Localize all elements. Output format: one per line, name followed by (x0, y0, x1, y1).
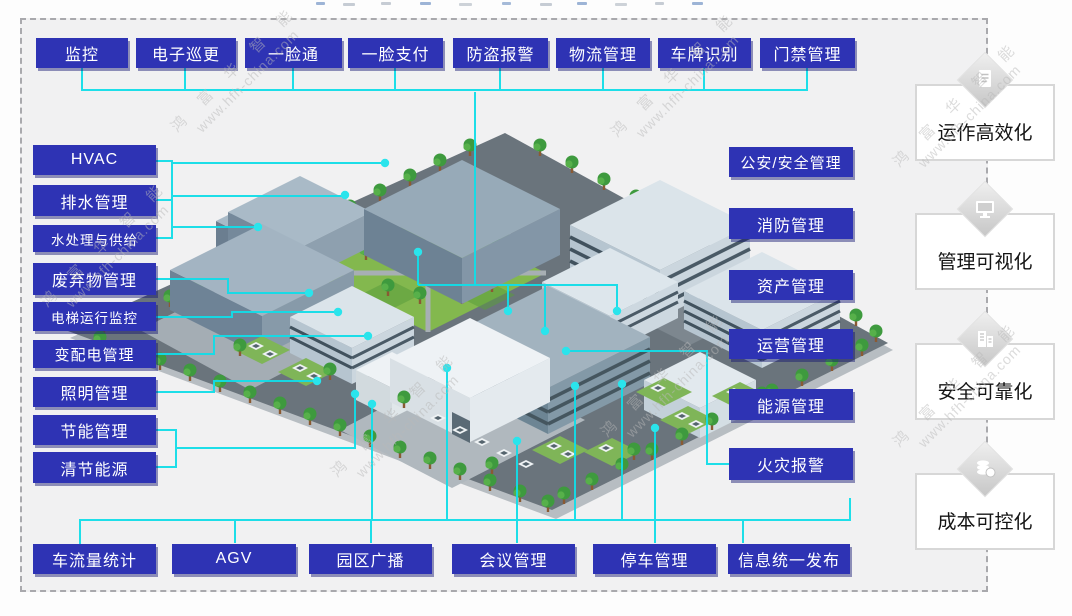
module-water-treatment[interactable]: 水处理与供给 (33, 225, 156, 252)
module-power-distribution[interactable]: 变配电管理 (33, 340, 156, 368)
module-clean-energy[interactable]: 清节能源 (33, 452, 156, 483)
campus-isometric-illustration (0, 0, 1072, 616)
benefit-card-cost-control: 成本可控化 (915, 473, 1055, 550)
coins-icon (970, 453, 1000, 483)
document-icon (970, 64, 1000, 94)
module-parking[interactable]: 停车管理 (593, 544, 716, 574)
module-drainage[interactable]: 排水管理 (33, 185, 156, 216)
module-elevator[interactable]: 电梯运行监控 (33, 302, 156, 331)
module-plate-recognition[interactable]: 车牌识别 (658, 38, 751, 68)
module-operations[interactable]: 运营管理 (729, 329, 853, 359)
benefit-card-efficient-operation: 运作高效化 (915, 84, 1055, 161)
smart-park-diagram: 监控 电子巡更 一脸通 一脸支付 防盗报警 物流管理 车牌识别 门禁管理 HVA… (0, 0, 1072, 616)
module-waste[interactable]: 废弃物管理 (33, 263, 156, 295)
module-traffic-stats[interactable]: 车流量统计 (33, 544, 156, 574)
benefit-label: 安全可靠化 (937, 377, 1032, 404)
benefit-card-visual-management: 管理可视化 (915, 213, 1055, 290)
benefit-label: 管理可视化 (937, 247, 1032, 274)
benefit-label: 成本可控化 (937, 507, 1032, 534)
benefit-label: 运作高效化 (937, 118, 1032, 145)
module-burglar-alarm[interactable]: 防盗报警 (453, 38, 548, 68)
module-park-broadcast[interactable]: 园区广播 (309, 544, 432, 574)
module-fire-management[interactable]: 消防管理 (729, 208, 853, 239)
module-energy-saving[interactable]: 节能管理 (33, 415, 156, 445)
module-fire-alarm[interactable]: 火灾报警 (729, 448, 853, 480)
module-public-security[interactable]: 公安/安全管理 (729, 147, 853, 177)
building-icon (970, 323, 1000, 353)
module-access-control[interactable]: 门禁管理 (760, 38, 855, 68)
module-meeting[interactable]: 会议管理 (452, 544, 575, 574)
benefit-card-safe-reliable: 安全可靠化 (915, 343, 1055, 420)
module-info-release[interactable]: 信息统一发布 (728, 544, 850, 574)
module-hvac[interactable]: HVAC (33, 145, 156, 175)
module-agv[interactable]: AGV (172, 544, 296, 574)
module-face-pass[interactable]: 一脸通 (245, 38, 342, 68)
module-face-payment[interactable]: 一脸支付 (348, 38, 443, 68)
module-monitoring[interactable]: 监控 (36, 38, 128, 68)
module-electronic-patrol[interactable]: 电子巡更 (136, 38, 236, 68)
monitor-icon (970, 193, 1000, 223)
module-energy-management[interactable]: 能源管理 (729, 389, 853, 420)
module-lighting[interactable]: 照明管理 (33, 377, 156, 407)
module-logistics[interactable]: 物流管理 (556, 38, 650, 68)
module-asset-management[interactable]: 资产管理 (729, 270, 853, 300)
